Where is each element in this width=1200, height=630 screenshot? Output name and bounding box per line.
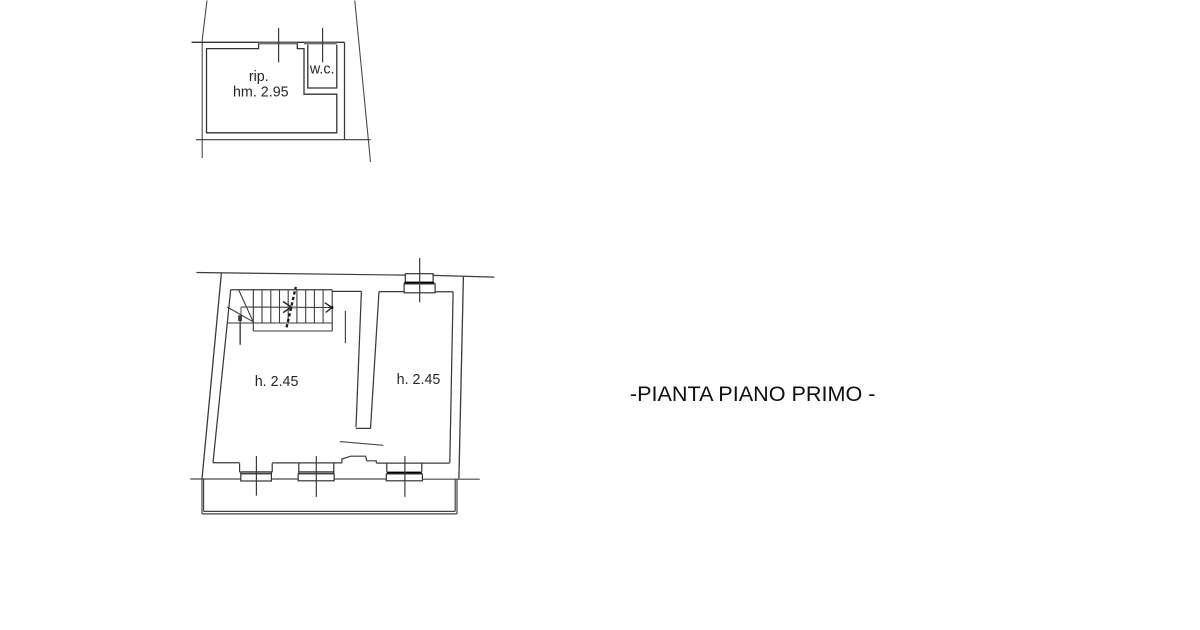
svg-text:h. 2.45: h. 2.45 (397, 372, 441, 388)
svg-text:hm. 2.95: hm. 2.95 (233, 84, 289, 100)
svg-text:h. 2.45: h. 2.45 (255, 374, 299, 390)
svg-text:w.c.: w.c. (309, 61, 335, 77)
svg-text:rip.: rip. (249, 69, 269, 85)
svg-text:-PIANTA PIANO PRIMO -: -PIANTA PIANO PRIMO - (630, 381, 876, 406)
